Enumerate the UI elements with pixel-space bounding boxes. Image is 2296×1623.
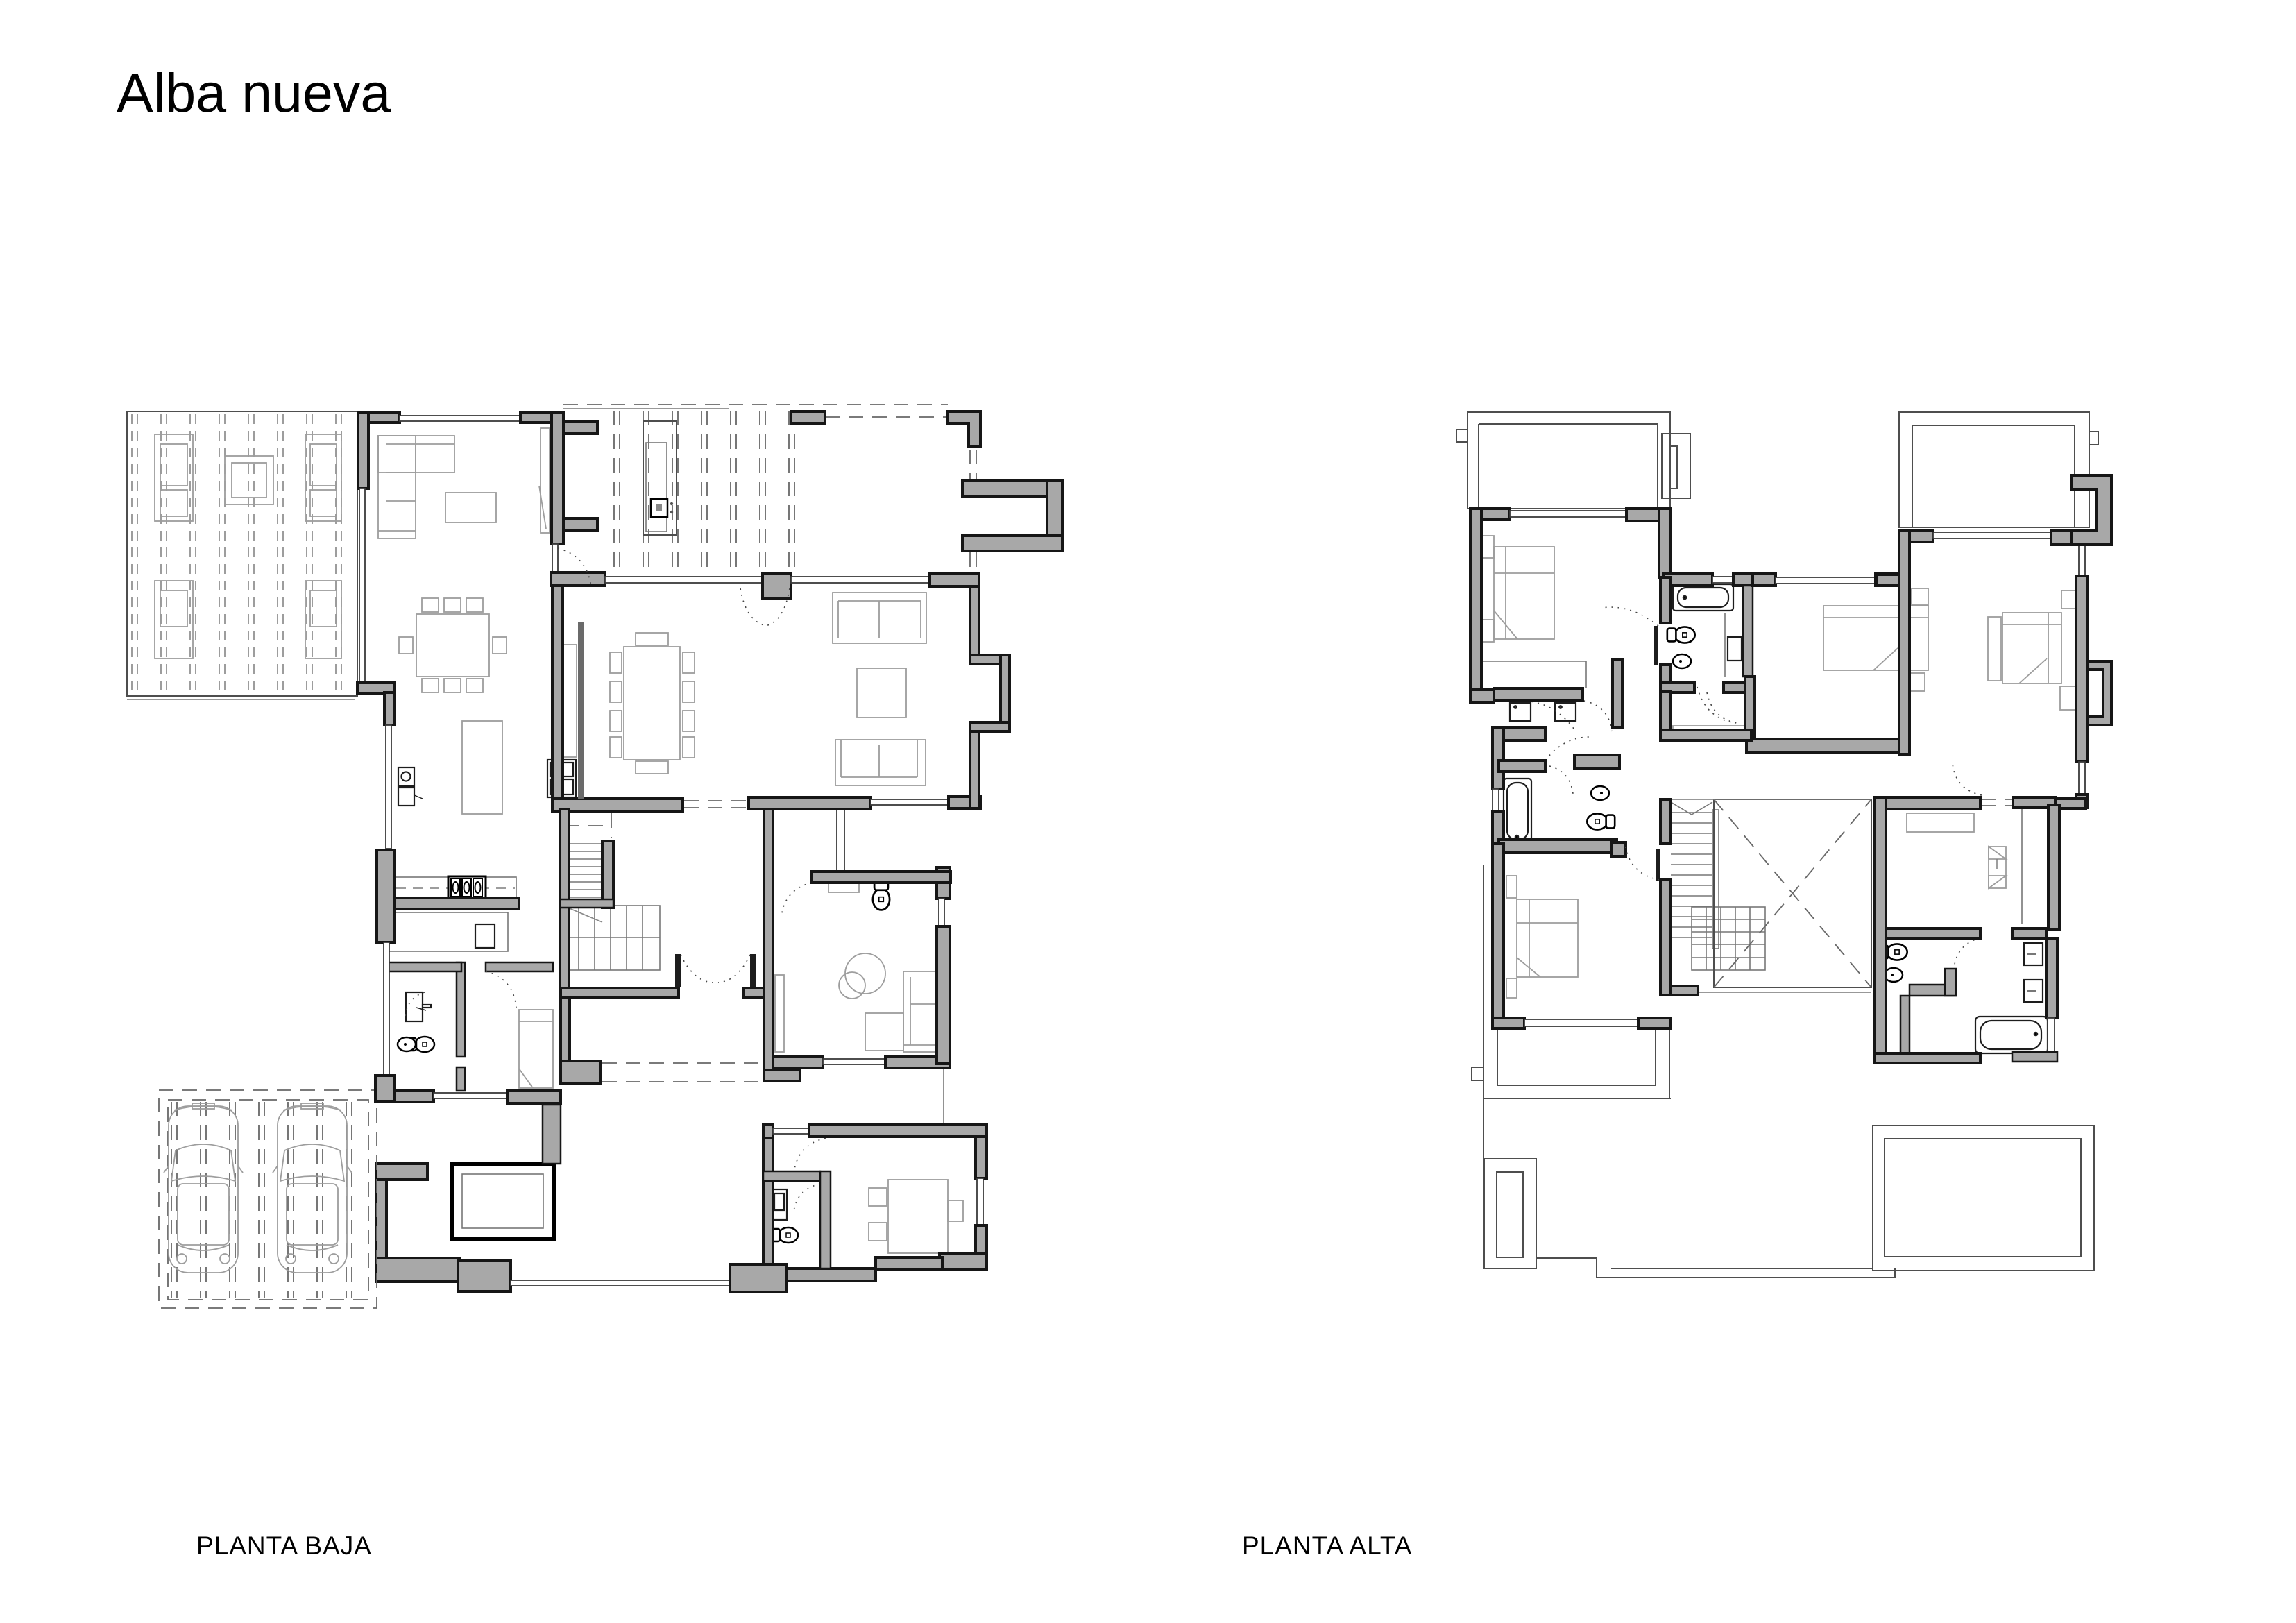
svg-text:PLANTA BAJA: PLANTA BAJA <box>196 1531 372 1560</box>
svg-text:Alba nueva: Alba nueva <box>117 62 391 124</box>
svg-text:PLANTA ALTA: PLANTA ALTA <box>1242 1531 1412 1560</box>
